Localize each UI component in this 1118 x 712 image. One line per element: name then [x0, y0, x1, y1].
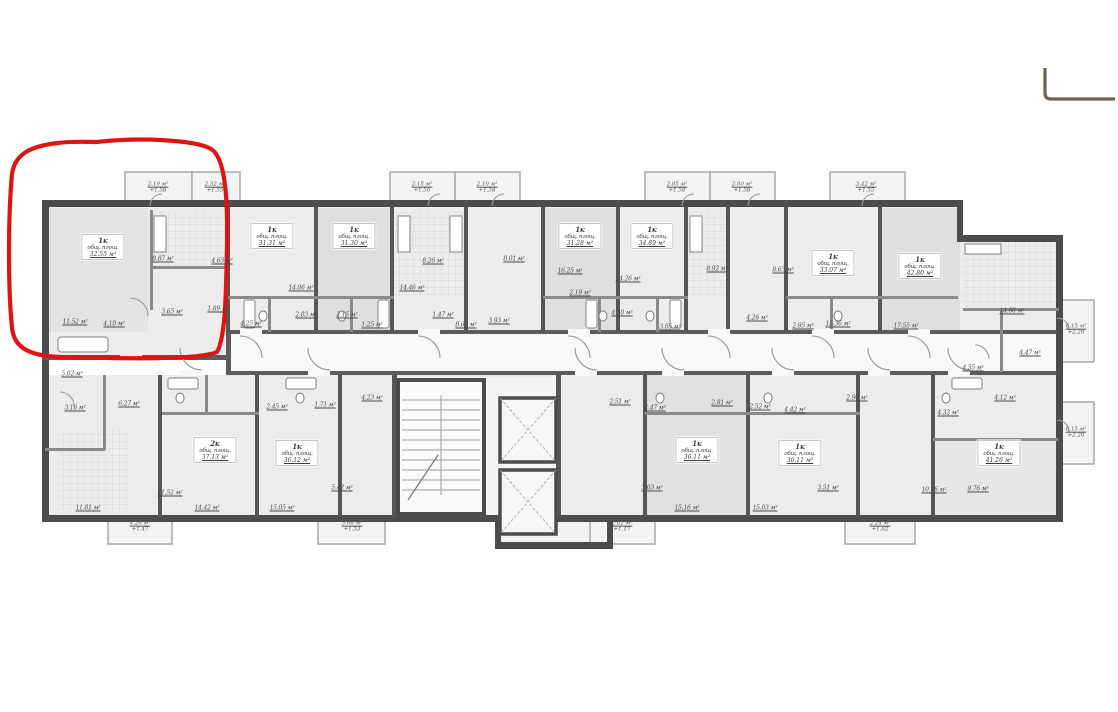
stairs — [398, 380, 484, 514]
corner-crop-mark — [1045, 68, 1115, 99]
floor-plan-drawing — [0, 0, 1118, 712]
floor-plan-page: 1кобщ. площ.32.55 м²1кобщ. площ.31.31 м²… — [0, 0, 1118, 712]
